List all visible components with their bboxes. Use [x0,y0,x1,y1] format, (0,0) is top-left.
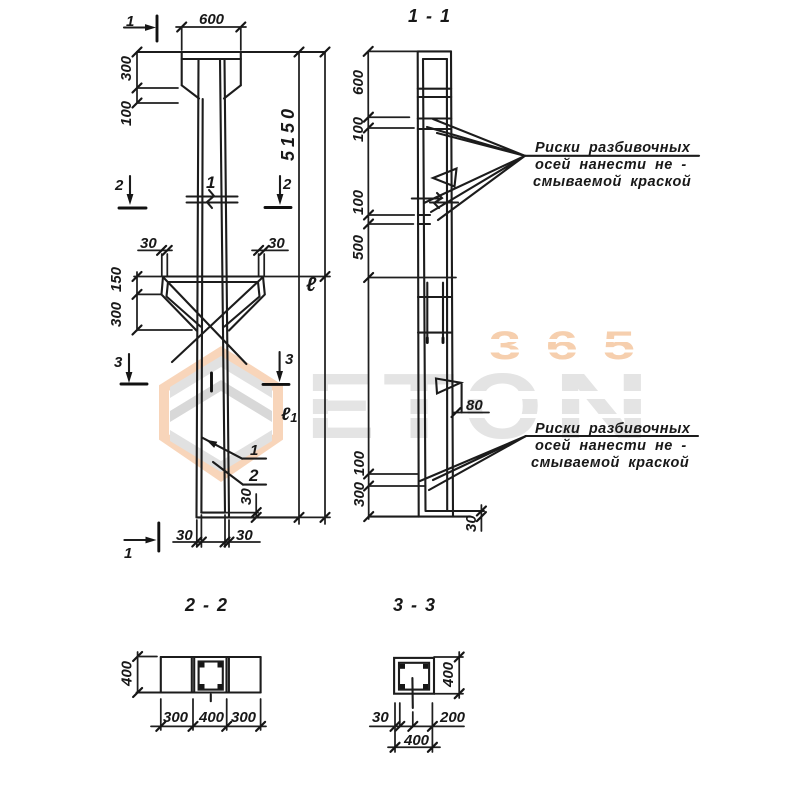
svg-text:300: 300 [231,709,257,726]
svg-text:200: 200 [439,709,466,726]
svg-text:ℓ: ℓ [306,274,317,296]
svg-text:300: 300 [351,481,368,507]
svg-text:1: 1 [124,545,132,562]
svg-text:30: 30 [268,235,285,252]
svg-text:3: 3 [285,351,294,368]
svg-text:100: 100 [351,450,368,476]
svg-text:100: 100 [350,116,367,142]
svg-text:осей нанести не -: осей нанести не - [535,438,687,454]
svg-text:400: 400 [198,709,225,726]
svg-text:30: 30 [463,515,480,532]
svg-text:150: 150 [108,266,125,292]
svg-text:600: 600 [199,11,225,28]
svg-text:100: 100 [118,100,135,126]
svg-text:300: 300 [108,301,125,327]
svg-text:2: 2 [114,177,124,194]
svg-text:осей нанести не -: осей нанести не - [535,157,687,173]
svg-text:3: 3 [114,354,123,371]
svg-text:30: 30 [372,709,389,726]
svg-text:смываемой краской: смываемой краской [533,174,691,190]
svg-text:100: 100 [350,189,367,215]
svg-text:400: 400 [403,732,430,749]
svg-text:500: 500 [350,234,367,260]
svg-text:30: 30 [176,527,193,544]
svg-text:365: 365 [489,323,660,368]
svg-text:30: 30 [236,527,253,544]
svg-text:30: 30 [238,488,255,505]
svg-text:400: 400 [440,661,457,688]
svg-text:2: 2 [248,466,259,485]
svg-text:1: 1 [250,442,258,459]
svg-text:30: 30 [140,235,157,252]
svg-text:5150: 5150 [278,105,298,161]
svg-text:2 - 2: 2 - 2 [184,595,229,615]
svg-text:400: 400 [119,660,136,687]
svg-text:Риски разбивочных: Риски разбивочных [535,140,691,156]
svg-text:600: 600 [350,69,367,95]
svg-text:300: 300 [163,709,189,726]
svg-text:Риски разбивочных: Риски разбивочных [535,421,691,437]
svg-text:80: 80 [466,397,483,414]
svg-text:2: 2 [282,176,292,193]
svg-text:смываемой краской: смываемой краской [531,455,689,471]
svg-text:1: 1 [206,173,215,192]
svg-text:E: E [306,354,375,458]
svg-text:300: 300 [118,55,135,81]
svg-text:1 - 1: 1 - 1 [408,6,452,26]
svg-text:1: 1 [126,13,134,30]
svg-text:3 - 3: 3 - 3 [393,595,437,615]
